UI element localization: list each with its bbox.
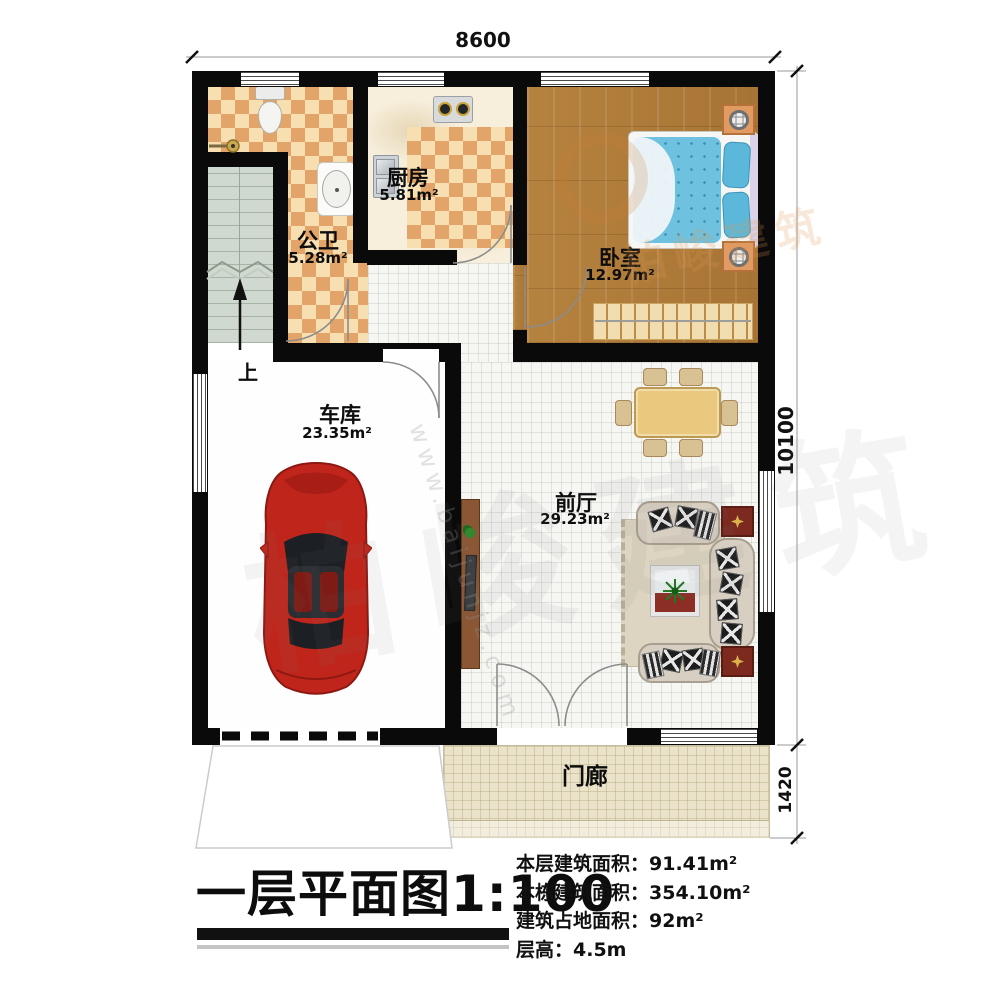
stat-total-area: 本栋建筑面积：354.10m²: [516, 879, 750, 908]
wall-stairs-top: [207, 152, 288, 167]
dining-chair: [643, 368, 667, 386]
wall-bedroom-door-stub: [513, 330, 527, 344]
bathroom-area: 5.28m²: [288, 249, 347, 267]
cabinet-plant-icon: [463, 525, 477, 541]
stat-footprint-area: 建筑占地面积：92m²: [516, 907, 750, 936]
wall-kitchen-bedroom: [513, 86, 527, 265]
window-garage-left: [192, 373, 208, 493]
bed-pillow-top: [722, 141, 751, 188]
driveway-outline: [196, 746, 452, 848]
lamp-icon: [729, 247, 749, 267]
sofa-cushion: [715, 546, 739, 570]
star-icon: [731, 655, 744, 668]
stove-burner-left: [438, 102, 452, 116]
garage-area: 23.35m²: [302, 424, 372, 442]
window-bedroom-top: [540, 71, 650, 87]
side-table-bottom: [721, 646, 754, 677]
dining-chair: [721, 400, 738, 426]
coffee-table: [651, 566, 699, 616]
wall-bath-kitchen: [353, 86, 368, 263]
car: [260, 460, 372, 698]
bathroom-floor-lower: [288, 263, 368, 343]
title-underline-bar: [197, 928, 509, 940]
wall-kitchen-bottom: [367, 250, 457, 265]
dining-chair: [679, 368, 703, 386]
kitchen-area: 5.81m²: [379, 186, 438, 204]
dining-chair: [679, 439, 703, 457]
sofa-cushion: [716, 598, 739, 621]
dimension-porch-height: 1420: [776, 766, 796, 813]
nightstand-bottom: [722, 241, 755, 272]
title-underline-thin: [197, 945, 509, 949]
bedroom-door-threshold: [513, 265, 527, 330]
stat-storey-height: 层高：4.5m: [516, 936, 750, 965]
lamp-icon: [729, 110, 749, 130]
star-icon: [731, 515, 744, 528]
window-hall-bottom: [660, 728, 758, 745]
dining-table: [634, 387, 721, 438]
dimension-top-width: 8600: [455, 28, 511, 52]
toilet-tank: [255, 86, 285, 100]
porch-label: 门廊: [562, 757, 608, 791]
tv-screen: [464, 555, 477, 611]
dining-chair: [643, 439, 667, 457]
side-table-top: [721, 506, 754, 537]
sofa-cushion: [720, 622, 743, 645]
dining-chair: [615, 400, 632, 426]
title-block: 一层平面图1:100 本层建筑面积：91.41m² 本栋建筑面积：354.10m…: [0, 850, 1000, 980]
bed-pillow-bottom: [722, 191, 751, 238]
bedroom-area: 12.97m²: [585, 266, 655, 284]
dimension-right-height: 10100: [774, 406, 798, 476]
bathroom-sink-drain: [335, 188, 339, 192]
stove-burner-right: [456, 102, 470, 116]
wall-stairs-side: [273, 160, 288, 343]
nightstand-top: [722, 104, 755, 135]
sofa-cushion: [719, 571, 743, 595]
building-stats: 本层建筑面积：91.41m² 本栋建筑面积：354.10m² 建筑占地面积：92…: [516, 850, 750, 964]
stat-floor-area: 本层建筑面积：91.41m²: [516, 850, 750, 879]
wall-right: [758, 71, 775, 745]
entry-door-opening: [497, 728, 627, 745]
garage-overhead-door-gap: [220, 728, 380, 745]
wall-garage-hall: [445, 343, 461, 728]
window-hall-right: [758, 470, 775, 613]
porch-step-band: [444, 820, 769, 838]
floor-plan-canvas: 公卫 5.28m² 厨房 5.81m² 卧室 12.97m² 车库 23.35m…: [0, 0, 1000, 990]
car-graphic: [260, 460, 372, 698]
hall-area: 29.23m²: [540, 510, 610, 528]
wall-bedroom-bottom: [513, 343, 758, 362]
garage-door-opening: [383, 349, 439, 362]
stairs-up-label: 上: [238, 357, 258, 386]
window-bathroom-top: [240, 71, 300, 87]
bed-headboard: [750, 134, 758, 246]
wardrobe-rod: [595, 320, 751, 322]
stairs: [207, 167, 273, 343]
window-kitchen-top: [377, 71, 445, 87]
